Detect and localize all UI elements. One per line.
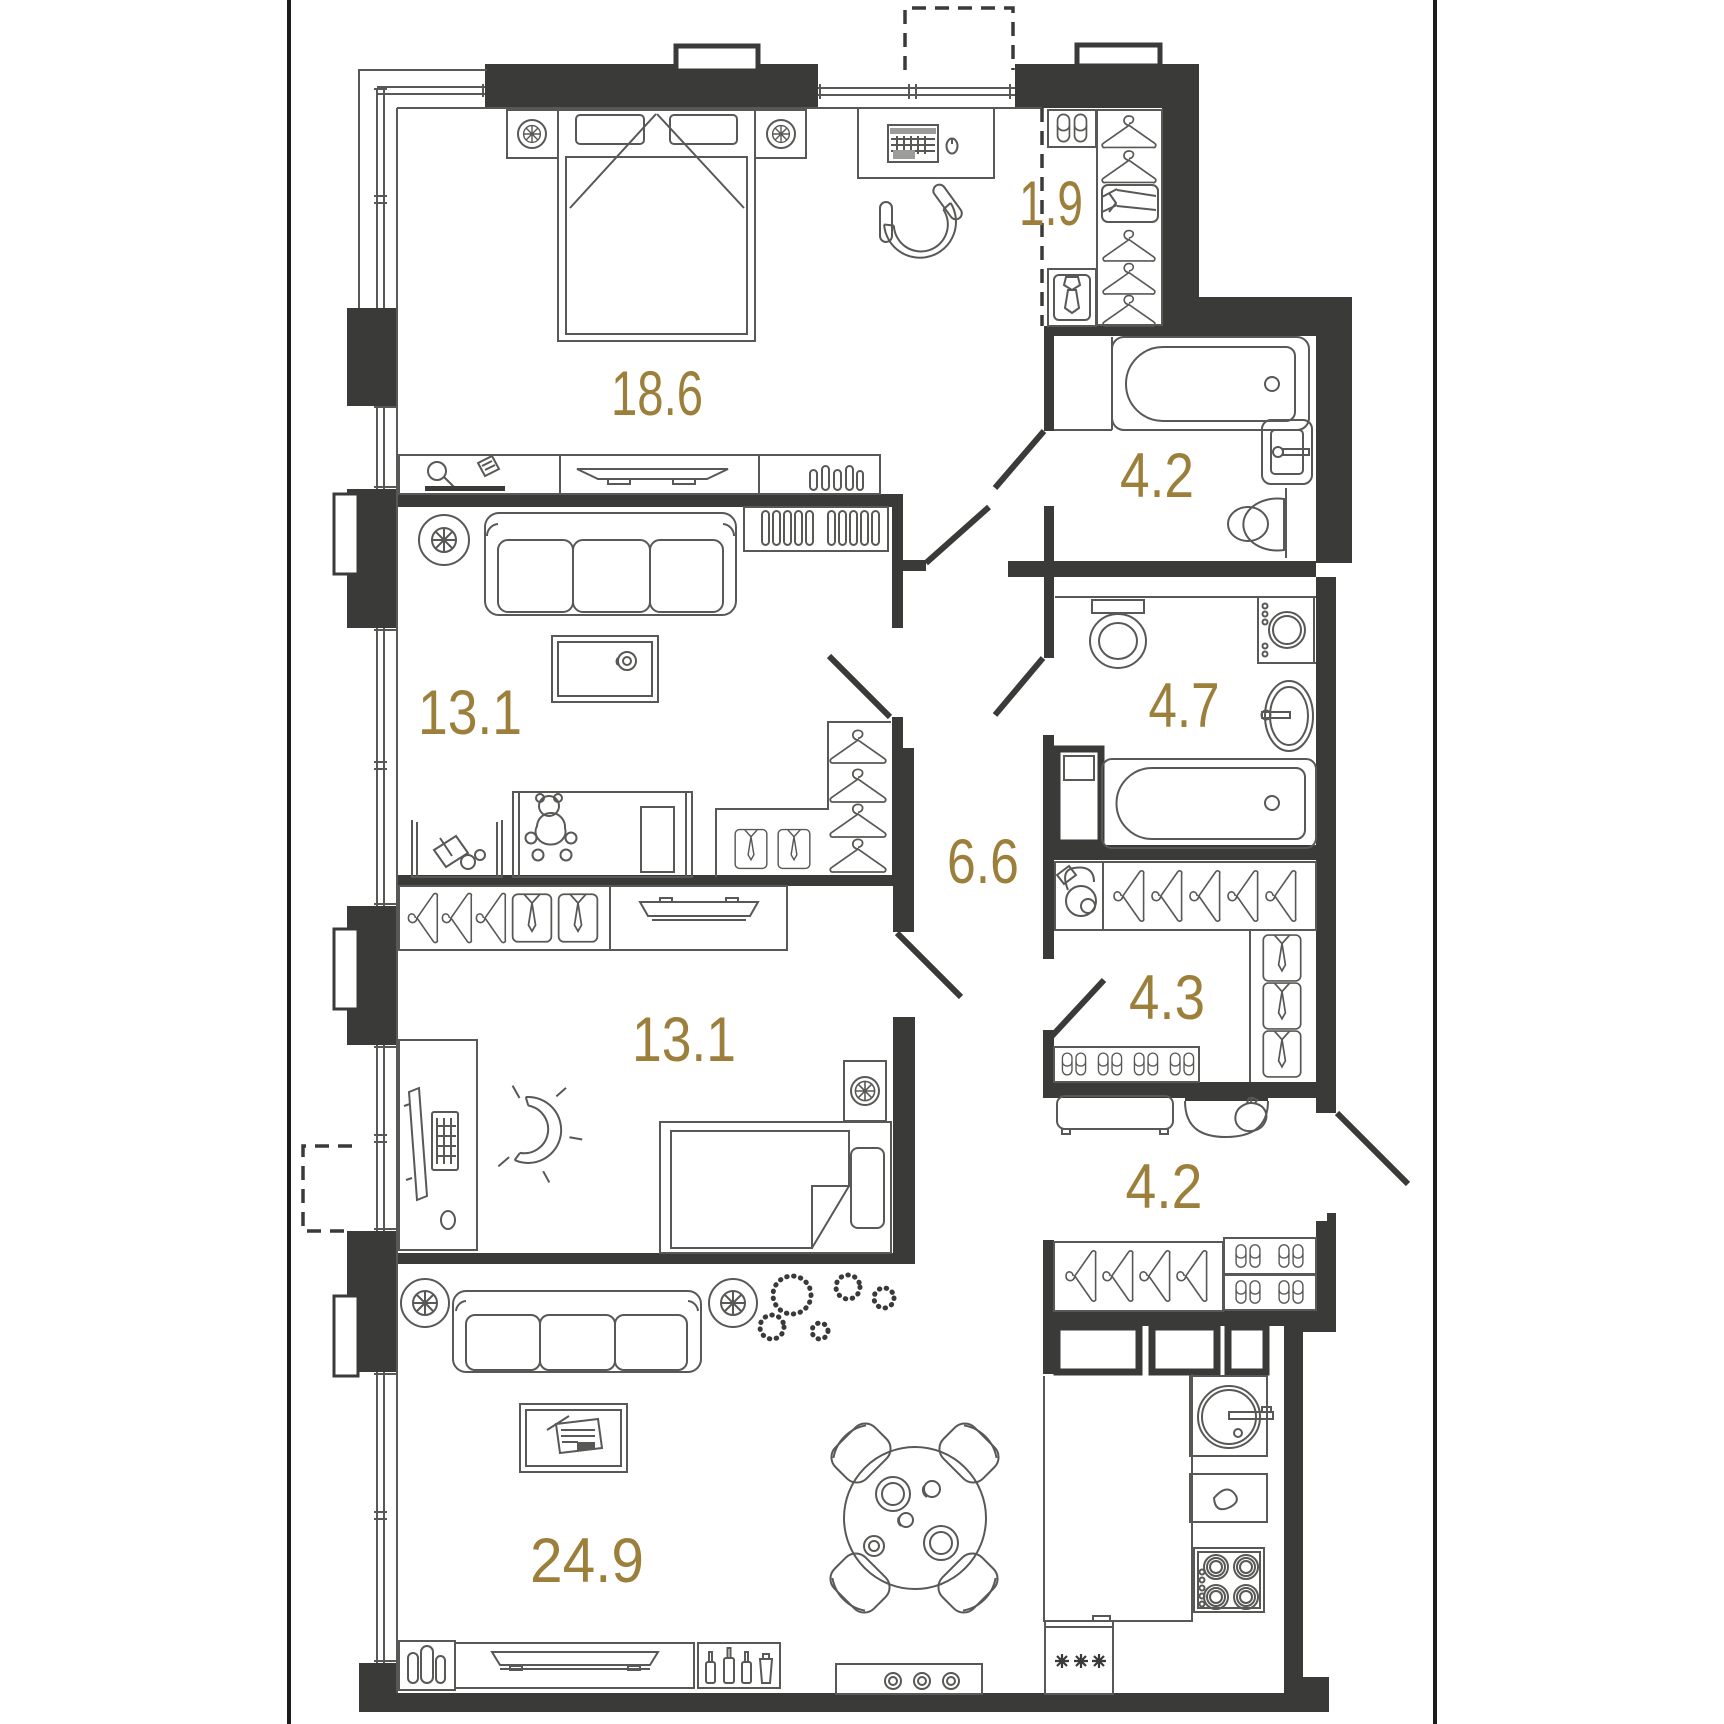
svg-text:6.6: 6.6 (947, 827, 1019, 897)
svg-text:13.1: 13.1 (418, 678, 522, 748)
svg-text:24.9: 24.9 (530, 1526, 644, 1596)
svg-text:13.1: 13.1 (632, 1005, 736, 1075)
svg-text:1.9: 1.9 (1019, 169, 1083, 239)
svg-text:4.2: 4.2 (1120, 441, 1194, 511)
svg-text:18.6: 18.6 (611, 359, 703, 429)
svg-text:4.7: 4.7 (1149, 671, 1220, 741)
svg-text:4.3: 4.3 (1129, 963, 1205, 1033)
svg-text:4.2: 4.2 (1126, 1152, 1203, 1222)
